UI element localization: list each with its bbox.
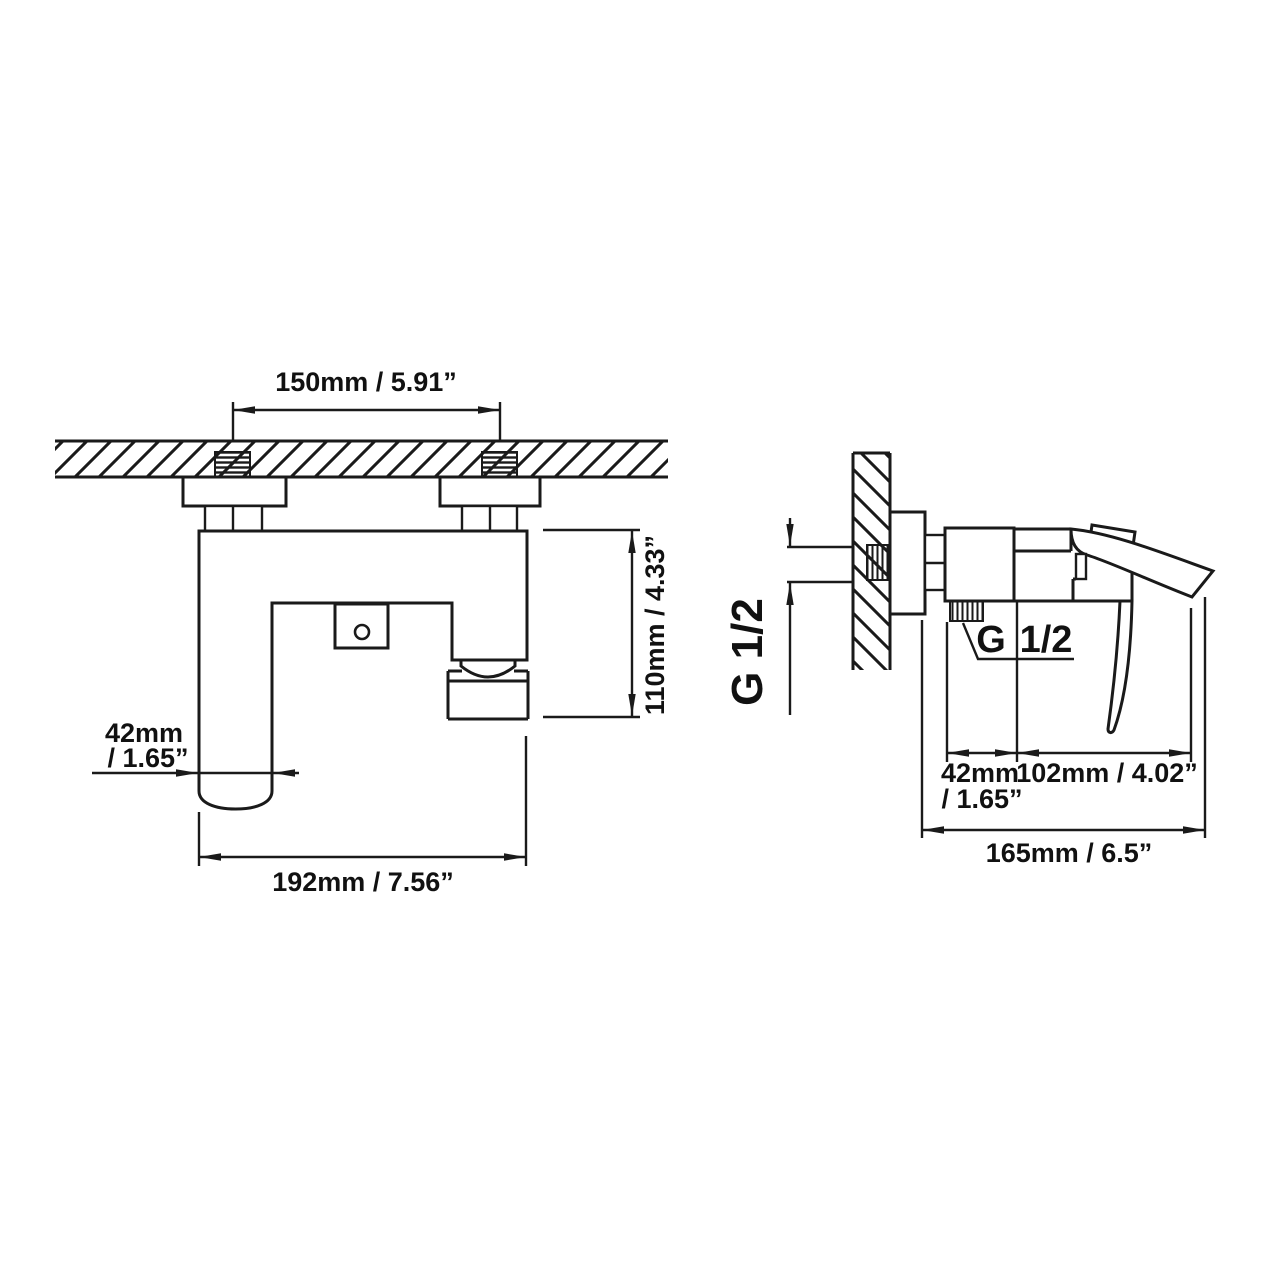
handle-side — [1108, 601, 1132, 733]
dim-height-label: 110mm / 4.33” — [640, 535, 670, 715]
dim-supply-thread: G 1/2 — [723, 518, 853, 715]
front-view: 150mm / 5.91” 110mm / 4.33” 42mm / 1.65”… — [55, 367, 670, 897]
side-view: G 1/2 G 1/2 42mm / 1.65” 102mm / 4.02” 1… — [723, 453, 1213, 868]
dim-body-depth-label2: / 1.65” — [941, 784, 1022, 814]
dim-height: 110mm / 4.33” — [543, 530, 670, 717]
thread-size-g-label: G — [976, 619, 1006, 661]
hose-outlet-thread — [950, 601, 983, 621]
dim-spout-width-label2: / 1.65” — [107, 743, 188, 773]
handle-pivot — [1076, 554, 1086, 579]
thread-size-half-label: 1/2 — [1020, 619, 1073, 661]
thread-size-rotated-label: G 1/2 — [723, 598, 772, 706]
right-thread-fitting — [482, 452, 517, 477]
dim-overall-width-label: 192mm / 7.56” — [272, 867, 454, 897]
dim-spout-reach-label: 102mm / 4.02” — [1016, 758, 1198, 788]
dim-hole-spacing-label: 150mm / 5.91” — [275, 367, 457, 397]
left-connector — [205, 506, 262, 531]
side-escutcheon — [890, 512, 925, 614]
right-connector — [462, 506, 517, 531]
side-thread-fitting — [867, 545, 890, 580]
side-connector — [925, 535, 945, 590]
right-escutcheon — [440, 477, 540, 506]
faucet-body-front — [199, 531, 527, 809]
spout-side — [1071, 529, 1213, 597]
faucet-dimension-drawing: 150mm / 5.91” 110mm / 4.33” 42mm / 1.65”… — [0, 0, 1280, 1280]
front-wall-hatch — [55, 441, 668, 477]
dim-hole-spacing: 150mm / 5.91” — [233, 367, 500, 440]
dim-overall-depth-label: 165mm / 6.5” — [986, 838, 1153, 868]
left-escutcheon — [183, 477, 286, 506]
handshower-outlet-front — [448, 660, 528, 719]
diverter-knob — [355, 625, 369, 639]
technical-drawing-page: 150mm / 5.91” 110mm / 4.33” 42mm / 1.65”… — [0, 0, 1280, 1280]
front-wall — [55, 441, 668, 477]
left-thread-fitting — [215, 452, 250, 477]
